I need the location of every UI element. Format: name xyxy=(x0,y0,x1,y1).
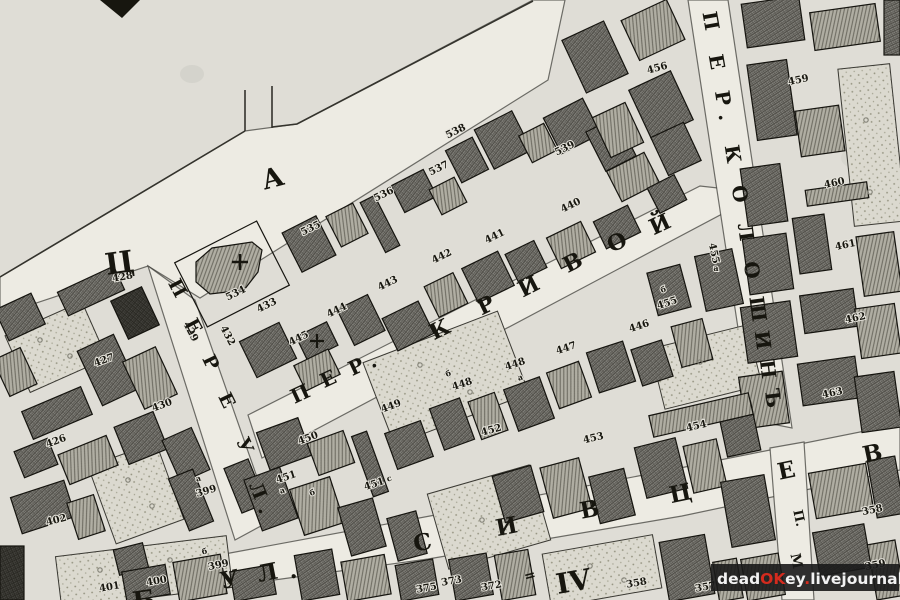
building xyxy=(856,232,900,297)
street-name-letter: О xyxy=(727,183,753,204)
block-letter-IV: IV xyxy=(553,562,594,600)
building xyxy=(854,371,900,432)
street-name-letter: Ъ xyxy=(760,387,786,409)
watermark: deadOKey.livejournal.com xyxy=(711,564,900,591)
block-letter-Б: Б xyxy=(131,585,157,600)
building xyxy=(795,105,845,157)
watermark-part: OK xyxy=(760,570,786,588)
street-name-letter: Л xyxy=(733,222,759,243)
street-name-letter: И xyxy=(750,329,776,351)
street-name-letter: Ш xyxy=(744,295,771,323)
building xyxy=(884,0,900,55)
building xyxy=(0,546,24,600)
plot-number-а: а xyxy=(713,263,718,273)
map-canvas: 428427426429430402399а399б40040153453553… xyxy=(0,0,900,600)
historical-map-page: 428427426429430402399а399б40040153453553… xyxy=(0,0,900,600)
building xyxy=(341,554,391,600)
watermark-part: livejournal xyxy=(810,570,900,588)
building xyxy=(294,549,339,600)
street-name-letter: К xyxy=(720,143,747,165)
watermark-text: deadOKey.livejournal.com xyxy=(717,570,900,588)
watermark-part: dead xyxy=(717,570,760,588)
watermark-part: ey xyxy=(785,570,806,588)
block-letter-Ц: Ц xyxy=(103,244,137,283)
building xyxy=(800,288,859,333)
building xyxy=(741,0,805,48)
street-name-letter: Н xyxy=(755,358,781,380)
street-name-letter: О xyxy=(739,260,765,281)
